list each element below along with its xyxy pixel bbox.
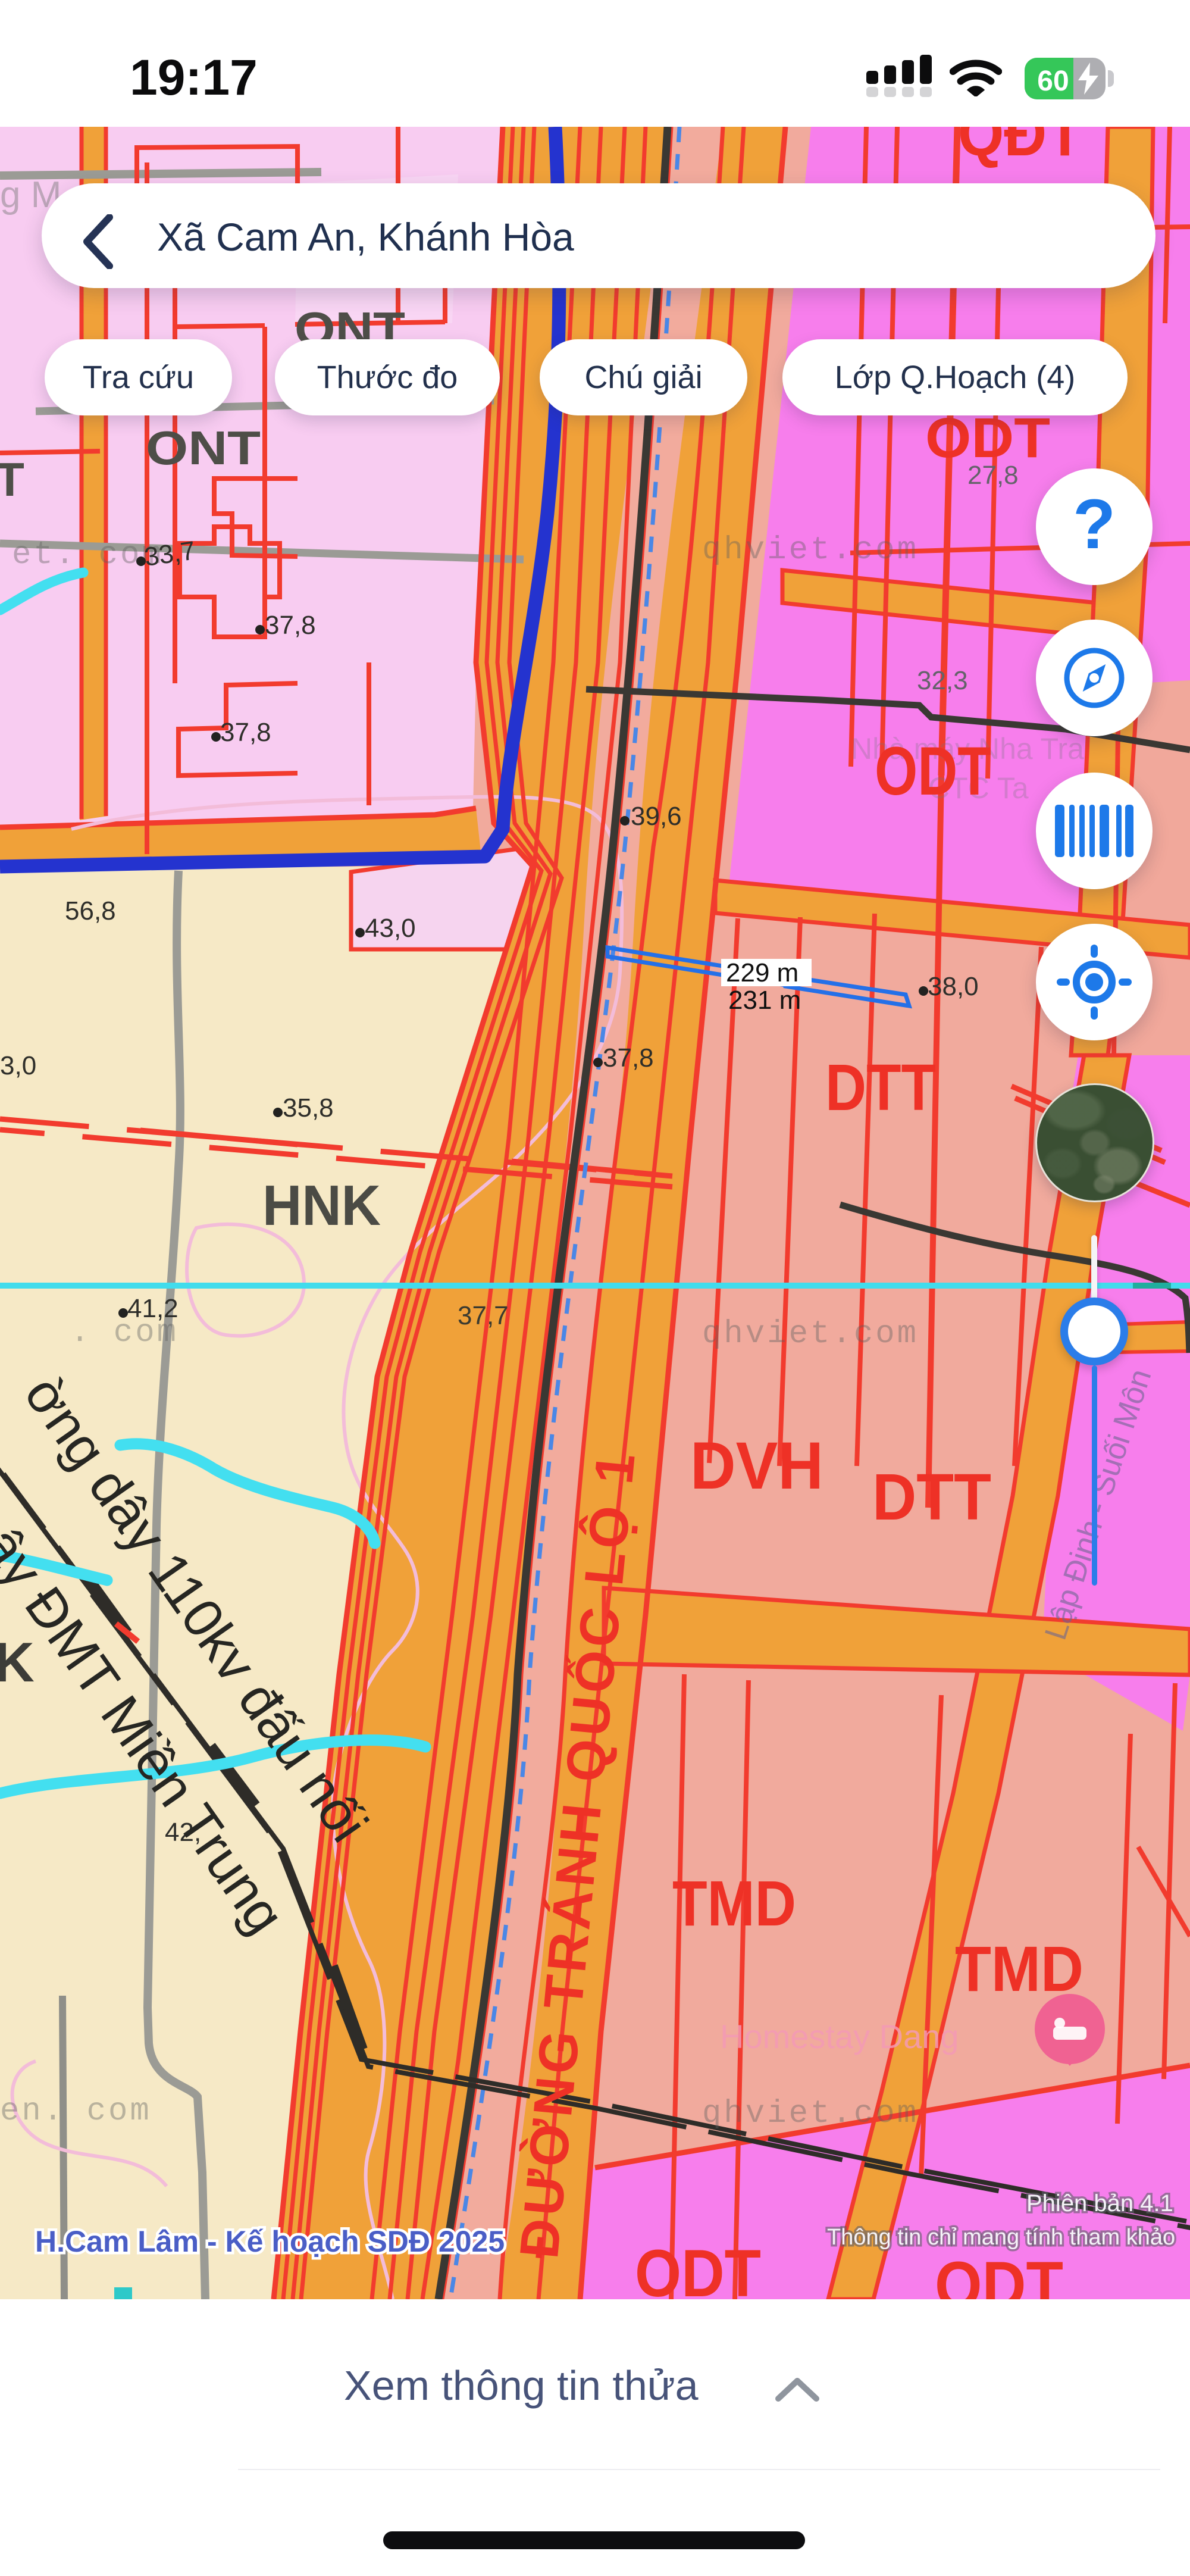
svg-text:QĐT: QĐT [958, 127, 1083, 169]
svg-text:qhviet.com: qhviet.com [702, 2096, 919, 2132]
svg-text:32,3: 32,3 [917, 666, 968, 695]
svg-text:39,6: 39,6 [631, 802, 682, 831]
svg-text:et. com: et. com [12, 537, 164, 573]
svg-text:Thông tin chỉ mang tính tham k: Thông tin chỉ mang tính tham khảo [827, 2225, 1175, 2250]
svg-text:27,8: 27,8 [967, 461, 1019, 490]
svg-text:38,0: 38,0 [928, 972, 979, 1001]
svg-text:ODT: ODT [875, 733, 991, 809]
svg-text:37,7: 37,7 [458, 1301, 509, 1330]
svg-text:ODT: ODT [635, 2236, 761, 2299]
svg-text:3,0: 3,0 [0, 1051, 36, 1080]
svg-text:37,8: 37,8 [603, 1043, 654, 1073]
svg-text:41,2: 41,2 [127, 1294, 178, 1323]
svg-text:ODT: ODT [935, 2248, 1063, 2299]
svg-text:229 m: 229 m [726, 958, 798, 987]
svg-text:37,8: 37,8 [265, 611, 316, 640]
svg-text:DTT: DTT [825, 1051, 936, 1124]
svg-text:ONT: ONT [146, 421, 261, 474]
svg-text:TMD: TMD [955, 1933, 1083, 2005]
svg-text:H.Cam Lâm - Kế hoạch SDĐ 2025: H.Cam Lâm - Kế hoạch SDĐ 2025 [35, 2225, 505, 2258]
svg-text:T: T [0, 453, 24, 506]
svg-text:K: K [0, 1631, 35, 1693]
svg-text:HNK: HNK [262, 1174, 381, 1237]
svg-text:DTT: DTT [872, 1461, 991, 1534]
svg-text:56,8: 56,8 [65, 896, 116, 926]
svg-text:en. com: en. com [0, 2093, 152, 2130]
svg-text:TMD: TMD [672, 1867, 796, 1939]
svg-text:Phiên bản 4.1: Phiên bản 4.1 [1026, 2190, 1173, 2217]
svg-text:Homestay Dang: Homestay Dang [720, 2018, 959, 2055]
svg-text:DVH: DVH [690, 1428, 823, 1503]
svg-text:35,8: 35,8 [283, 1093, 334, 1123]
svg-text:231 m: 231 m [728, 986, 801, 1015]
svg-text:43,0: 43,0 [365, 914, 416, 943]
svg-text:qhviet.com: qhviet.com [702, 1316, 919, 1352]
svg-text:37,8: 37,8 [220, 718, 271, 747]
svg-text:qhviet.com: qhviet.com [702, 532, 919, 568]
